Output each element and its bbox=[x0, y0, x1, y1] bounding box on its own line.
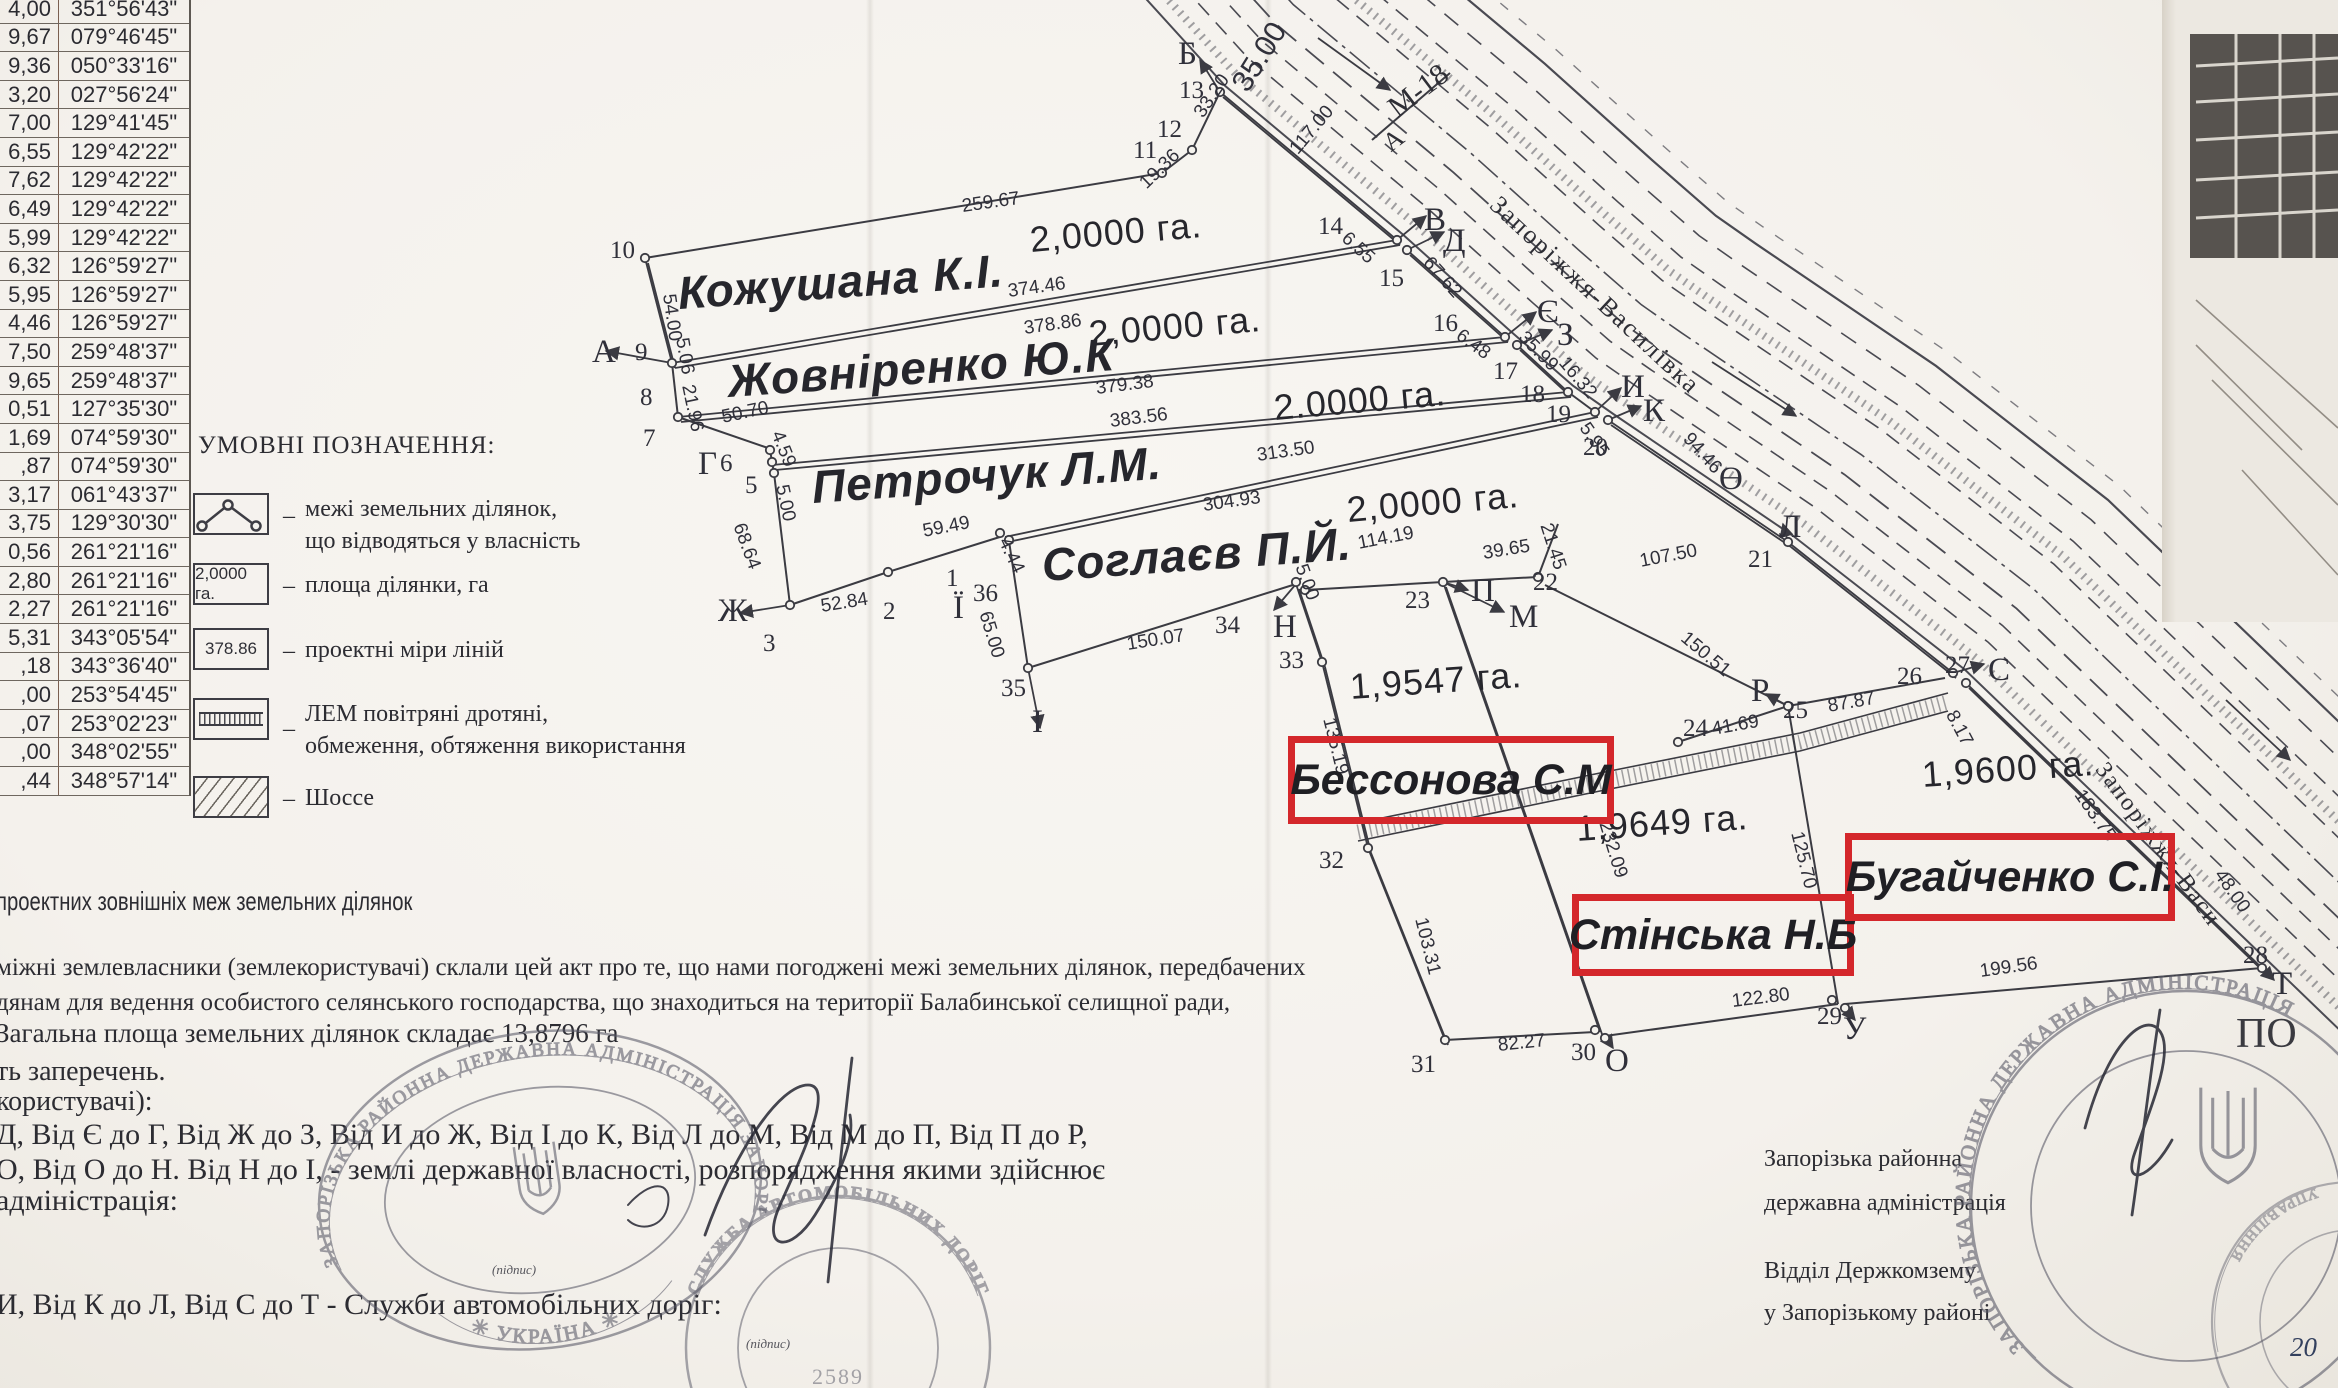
parcel-edge bbox=[1966, 683, 2262, 968]
vertex-dot bbox=[1403, 246, 1411, 254]
vertex-dot bbox=[1318, 658, 1326, 666]
parcel-edge bbox=[1407, 250, 1505, 337]
parcel-edge bbox=[1299, 589, 1325, 667]
vertex-dot bbox=[1674, 738, 1682, 746]
parcel-owner-stinska: Стінська Н.Б bbox=[1569, 911, 1857, 960]
vertex-dot bbox=[1501, 333, 1509, 341]
vertex-dot bbox=[641, 254, 649, 262]
round-stamp-administration: ЗАПОРІЗЬКА РАЙОННА ДЕРЖАВНА АДМІНІСТРАЦІ… bbox=[290, 1001, 790, 1378]
svg-text:УПРАВЛІННЯ: УПРАВЛІННЯ bbox=[2226, 1184, 2320, 1265]
round-stamp-road-service: СЛУЖБА АВТОМОБІЛЬНИХ ДОРІГ У ЗАПОРІЗЬКІЙ… bbox=[683, 1182, 994, 1388]
handwritten-signature bbox=[628, 1058, 852, 1282]
trident-icon bbox=[2201, 1088, 2255, 1183]
parcel-edge bbox=[1443, 577, 1538, 582]
parcel-edge bbox=[1009, 541, 1028, 668]
vertex-dot bbox=[1591, 408, 1599, 416]
trident-icon bbox=[514, 1142, 563, 1217]
parcel-edge bbox=[1371, 853, 1448, 1045]
vertex-dot bbox=[1591, 1026, 1599, 1034]
road-band-line bbox=[1115, 0, 2338, 1197]
vertex-dot bbox=[1841, 1004, 1849, 1012]
vertex-dot bbox=[1962, 679, 1970, 687]
vertex-dot bbox=[668, 359, 676, 367]
highlighted-parcel-bessonova: Бессонова С.М bbox=[1288, 736, 1614, 824]
vertex-dot bbox=[1292, 578, 1300, 586]
vertex-dot bbox=[1784, 702, 1792, 710]
scanned-land-act-document: 4,00351°56'43"9,67079°46'45"9,36050°33'1… bbox=[0, 0, 2338, 1388]
parcel-edge bbox=[1608, 420, 1788, 542]
direction-arrow bbox=[606, 351, 672, 363]
parcel-edge bbox=[1788, 542, 1953, 673]
parcel-edge bbox=[1791, 547, 1956, 678]
direction-arrow bbox=[1517, 330, 1552, 345]
vertex-dot bbox=[884, 568, 892, 576]
direction-arrow bbox=[1028, 668, 1040, 728]
vertex-dot bbox=[1534, 573, 1542, 581]
parcel-edge bbox=[1220, 92, 1397, 240]
vertex-dot bbox=[766, 446, 774, 454]
parcel-edge bbox=[1969, 688, 2265, 973]
parcel-edge bbox=[678, 417, 768, 448]
road-band-line bbox=[1105, 0, 2338, 1209]
svg-text:СЛУЖБА АВТОМОБІЛЬНИХ ДОРІГ У З: СЛУЖБА АВТОМОБІЛЬНИХ ДОРІГ У ЗАПОРІЗЬКІЙ… bbox=[683, 1182, 994, 1352]
svg-text:ЗАПОРІЗЬКА РАЙОННА ДЕРЖАВНА АД: ЗАПОРІЗЬКА РАЙОННА ДЕРЖАВНА АДМІНІСТРАЦІ… bbox=[291, 1010, 776, 1279]
parcel-edge bbox=[645, 258, 672, 363]
parcel-edge bbox=[645, 173, 1162, 258]
parcel-edge bbox=[790, 572, 888, 605]
stamp-ring-text: ЗАПОРІЗЬКА РАЙОННА ДЕРЖАВНА АДМІНІСТРАЦІ… bbox=[291, 1010, 776, 1279]
vertex-dot bbox=[1513, 341, 1521, 349]
vertex-dot bbox=[1216, 88, 1224, 96]
vertex-dot bbox=[768, 458, 776, 466]
parcel-edge bbox=[1028, 584, 1296, 668]
parcel-edge bbox=[1788, 678, 1945, 706]
stamp-number: 2589 bbox=[812, 1364, 864, 1388]
vertex-dot bbox=[1604, 416, 1612, 424]
parcel-edge bbox=[774, 473, 790, 605]
fragment-dark-block bbox=[2190, 34, 2338, 258]
parcel-edge bbox=[1192, 92, 1220, 150]
parcel-edge bbox=[1223, 97, 1400, 245]
parcel-edge bbox=[1517, 345, 1568, 392]
vertex-dot bbox=[1949, 669, 1957, 677]
highlighted-parcel-stinska: Стінська Н.Б bbox=[1572, 894, 1854, 976]
parcel-edge bbox=[1611, 425, 1791, 547]
direction-arrow bbox=[1712, 362, 1796, 416]
vertex-dot bbox=[1364, 844, 1372, 852]
vertex-dot bbox=[1393, 236, 1401, 244]
stamp-ring-text: УПРАВЛІННЯ bbox=[2226, 1184, 2320, 1265]
vertex-dot bbox=[1828, 996, 1836, 1004]
folded-page-fragment bbox=[2162, 0, 2338, 622]
parcel-edge bbox=[888, 536, 1003, 572]
cadastral-diagram: ЗАПОРІЗЬКА РАЙОННА ДЕРЖАВНА АДМІНІСТРАЦІ… bbox=[0, 0, 2338, 1388]
handwritten-year: 20 bbox=[2290, 1332, 2318, 1362]
highlighted-parcel-buhaichenko: Бугайченко С.І. bbox=[1845, 833, 2175, 921]
parcel-edge bbox=[1305, 582, 1443, 590]
vertex-dot bbox=[770, 469, 778, 477]
parcel-edge bbox=[1296, 584, 1322, 662]
parcel-edge bbox=[1538, 524, 1558, 577]
parcel-edge bbox=[1162, 150, 1192, 173]
road-band bbox=[1105, 0, 2338, 1209]
handwritten-signature bbox=[2085, 1010, 2172, 1215]
vertex-dot bbox=[1188, 146, 1196, 154]
corner-fragment-text: ПО bbox=[2236, 1010, 2297, 1058]
vertex-dot bbox=[1441, 1036, 1449, 1044]
vertex-dot bbox=[786, 601, 794, 609]
vertex-dot bbox=[996, 529, 1004, 537]
vertex-dot bbox=[1024, 664, 1032, 672]
parcel-owner-bessonova: Бессонова С.М bbox=[1290, 756, 1611, 805]
direction-arrow bbox=[740, 605, 790, 613]
vertex-dot bbox=[1439, 578, 1447, 586]
parcel-edge bbox=[1445, 1032, 1595, 1040]
parcel-edge bbox=[672, 363, 678, 417]
vertex-dot bbox=[1601, 1034, 1609, 1042]
vertex-dot bbox=[1564, 388, 1572, 396]
direction-arrow bbox=[2226, 700, 2290, 760]
vertex-dot bbox=[1158, 169, 1166, 177]
parcel-edge bbox=[1678, 706, 1788, 742]
parcel-owner-buhaichenko: Бугайченко С.І. bbox=[1846, 853, 2174, 902]
vertex-dot bbox=[674, 413, 682, 421]
vertex-dot bbox=[1301, 586, 1309, 594]
vertex-dot bbox=[1005, 536, 1013, 544]
direction-arrow bbox=[1318, 38, 1390, 90]
direction-arrow bbox=[1397, 216, 1426, 240]
parcel-edge bbox=[1368, 848, 1445, 1040]
vertex-dot bbox=[1784, 538, 1792, 546]
parcel-edge bbox=[648, 263, 675, 368]
vertex-dot bbox=[2258, 964, 2266, 972]
stamp-ring-text: СЛУЖБА АВТОМОБІЛЬНИХ ДОРІГ У ЗАПОРІЗЬКІЙ… bbox=[683, 1182, 994, 1352]
parcel-edge bbox=[1605, 1004, 1838, 1036]
parcel-edge bbox=[1545, 585, 1788, 706]
